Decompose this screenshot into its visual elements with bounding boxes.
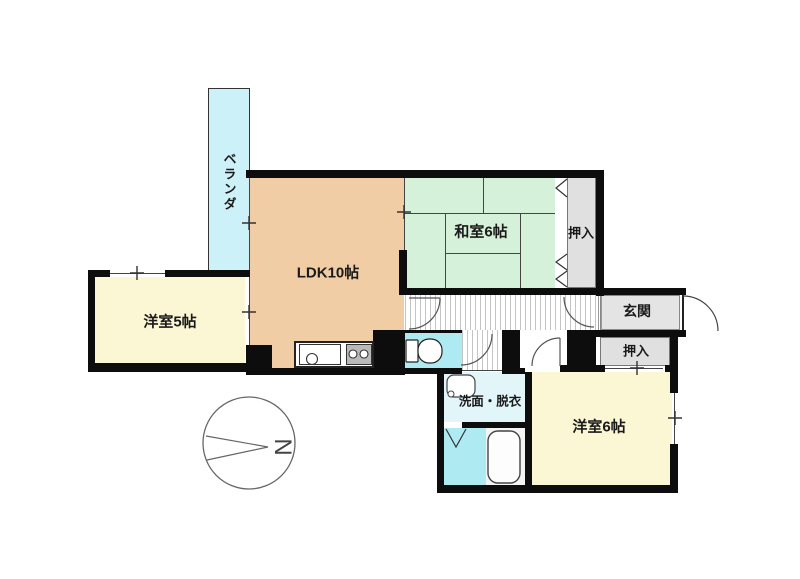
ldk-label: LDK10帖 <box>297 262 360 283</box>
toilet-icon <box>406 339 442 363</box>
folding-door-icon <box>446 429 466 447</box>
door-arc-western-room-6 <box>532 338 560 366</box>
veranda-label: ベランダ <box>220 152 239 212</box>
window-tick-markers <box>130 205 682 425</box>
compass-north-letter: N <box>269 438 296 455</box>
burner-icon <box>360 350 368 358</box>
sliding-door-icon <box>556 254 567 270</box>
door-arc-front-door <box>683 296 718 331</box>
compass-needle-icon <box>206 436 268 460</box>
door-arc-ldk <box>409 298 440 329</box>
door-arc-entrance-hall <box>564 297 594 327</box>
burner-icon <box>349 350 357 358</box>
symbol-overlay: N <box>0 0 800 579</box>
japanese-room-label: 和室6帖 <box>454 221 507 242</box>
closet-top-label: 押入 <box>568 223 594 242</box>
entrance-label: 玄関 <box>623 301 651 321</box>
floor-plan: N ベランダ LDK10帖 和室6帖 押入 玄関 押入 洋室5帖 洋室6帖 洗面… <box>0 0 800 579</box>
closet-right-label: 押入 <box>623 341 649 360</box>
sliding-door-icon <box>556 271 567 287</box>
compass: N <box>203 397 296 489</box>
western-room-6-label: 洋室6帖 <box>572 416 625 437</box>
sliding-door-icon <box>556 179 567 197</box>
sink-drain-icon <box>307 354 318 365</box>
door-arc-washroom <box>461 334 492 365</box>
western-room-5-label: 洋室5帖 <box>143 311 196 332</box>
washroom-label: 洗面・脱衣 <box>459 391 522 410</box>
bathtub-icon <box>488 431 520 483</box>
